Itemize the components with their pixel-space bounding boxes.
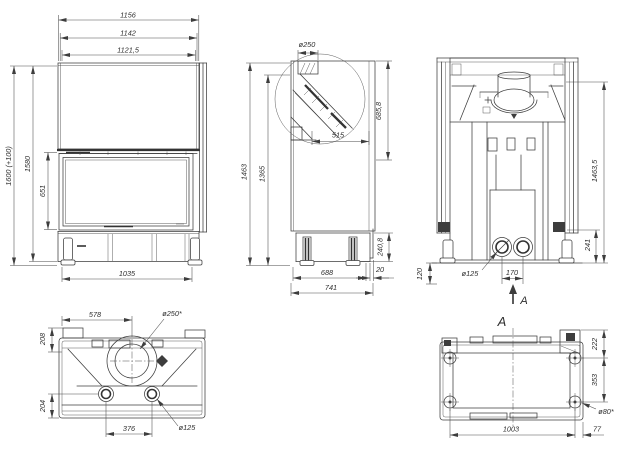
dim-front-base-width: 1035 bbox=[119, 269, 136, 278]
front-height-dims: 1600 (+100) 1580 651 bbox=[4, 66, 57, 266]
left-bracket bbox=[438, 222, 450, 232]
dim-rear-outlet-dia: ø125 bbox=[462, 269, 480, 278]
front-right-foot bbox=[191, 238, 200, 260]
dim-side-flue: ø250 bbox=[299, 40, 316, 49]
dim-side-hood-height: 685,8 bbox=[374, 101, 383, 120]
dim-side-height-body: 1365 bbox=[258, 165, 267, 182]
rear-view: 1463,5 241 ø125 170 120 A bbox=[415, 58, 608, 307]
dim-side-base-height: 240,8 bbox=[376, 237, 385, 257]
side-view: ø250 515 685,8 1463 1365 240,8 20 bbox=[240, 40, 395, 296]
dim-top-flue-dia: ø250* bbox=[162, 309, 183, 318]
dim-front-height-total: 1600 (+100) bbox=[4, 146, 13, 186]
dim-bottom-hole-dia: ø80* bbox=[598, 407, 615, 416]
flue-duct bbox=[291, 74, 354, 140]
dim-front-width-mid: 1142 bbox=[120, 29, 136, 38]
dim-side-height-total: 1463 bbox=[240, 164, 249, 180]
rear-dims: 1463,5 241 ø125 170 120 A bbox=[415, 82, 608, 307]
dim-side-lip: 20 bbox=[375, 265, 384, 274]
dim-front-width-inner: 1121,5 bbox=[117, 46, 140, 55]
dim-side-depth-inner: 515 bbox=[332, 131, 345, 140]
dim-top-width: 578 bbox=[89, 310, 102, 319]
section-arrow bbox=[509, 284, 517, 294]
front-left-foot bbox=[64, 238, 73, 260]
dim-side-base-depth: 688 bbox=[321, 268, 334, 277]
rear-hood-collar bbox=[450, 72, 565, 122]
dim-bottom-d1: 222 bbox=[590, 338, 599, 351]
bottom-feet bbox=[441, 349, 584, 411]
dim-top-d1: 208 bbox=[38, 332, 47, 346]
top-view: 578 ø250* 208 204 376 ø125 bbox=[38, 309, 205, 437]
section-letter: A bbox=[519, 295, 527, 307]
side-dims: ø250 515 685,8 1463 1365 240,8 20 bbox=[240, 40, 395, 296]
technical-drawing-sheet: 1156 1142 1121,5 1600 (+100) 1580 651 10… bbox=[0, 0, 624, 460]
dim-rear-height: 1463,5 bbox=[590, 159, 599, 182]
dim-top-d2: 204 bbox=[38, 400, 47, 413]
dim-front-glass-height: 651 bbox=[38, 185, 47, 197]
dim-rear-outlet-spacing: 170 bbox=[506, 268, 518, 277]
damper-handle bbox=[156, 355, 168, 367]
dim-rear-leg-height: 241 bbox=[583, 239, 592, 252]
fireplace-dimension-drawing: 1156 1142 1121,5 1600 (+100) 1580 651 10… bbox=[0, 0, 624, 460]
front-width-dims: 1156 1142 1121,5 bbox=[59, 11, 199, 62]
top-outlets bbox=[99, 387, 160, 402]
bottom-view: A 222 bbox=[440, 314, 615, 438]
right-bracket bbox=[553, 222, 565, 232]
base-struts bbox=[77, 234, 189, 261]
dim-front-width-outer: 1156 bbox=[120, 11, 137, 20]
dim-rear-offset: 120 bbox=[415, 268, 424, 280]
dim-top-outlet-dia: ø125 bbox=[179, 423, 197, 432]
side-base bbox=[296, 229, 373, 266]
dim-side-total-depth: 741 bbox=[325, 283, 337, 292]
front-view: 1156 1142 1121,5 1600 (+100) 1580 651 10… bbox=[4, 11, 207, 283]
front-base-dim: 1035 bbox=[62, 267, 192, 282]
rear-interior bbox=[472, 122, 548, 260]
view-a-label: A bbox=[497, 314, 507, 329]
top-flue bbox=[107, 336, 157, 386]
dim-top-outlet-spacing: 376 bbox=[123, 424, 136, 433]
bottom-dims: 222 353 ø80* 1003 77 bbox=[450, 330, 615, 438]
dim-bottom-width: 1003 bbox=[503, 425, 519, 434]
dim-bottom-d2: 353 bbox=[590, 374, 599, 386]
dim-bottom-offset: 77 bbox=[593, 425, 602, 434]
dim-front-height-body: 1580 bbox=[23, 156, 32, 172]
